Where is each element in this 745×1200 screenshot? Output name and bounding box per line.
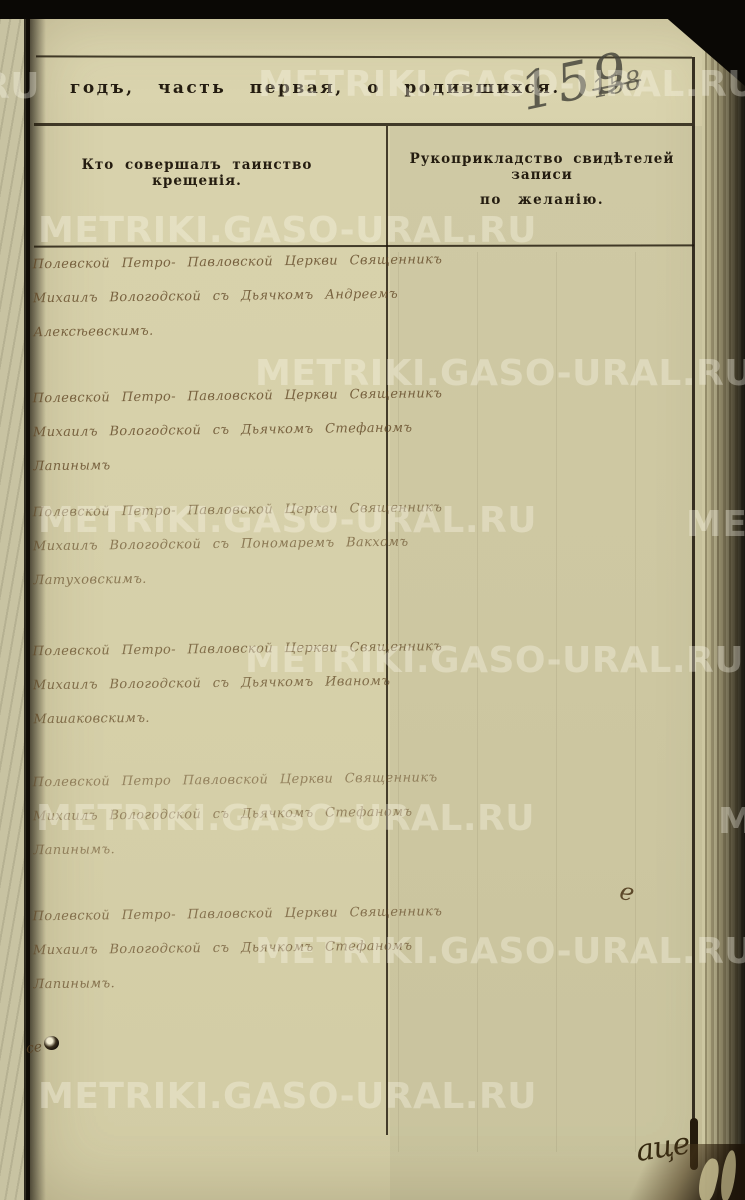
column-header-right-line2: по желанію. xyxy=(396,192,688,208)
previous-page-edge xyxy=(0,14,26,1200)
watermark-text: METRIKI.GASO-URAL.RU xyxy=(255,931,745,972)
handwritten-line: Михаилъ Вологодской съ Дьячкомъ Андреемъ xyxy=(33,278,395,316)
watermark-text: METRIKI.GASO-URAL.RU xyxy=(36,798,535,839)
watermark-text: METRIKI.GASO-URAL.RU xyxy=(38,500,537,541)
watermark-text: METRIKI.GASO-URAL.RU xyxy=(255,353,745,394)
book-edge-top xyxy=(0,0,745,19)
paper-hole xyxy=(44,1036,59,1050)
handwritten-line: Лапинымъ xyxy=(33,446,395,484)
watermark-text: METRIKI.GASO-URAL.RU xyxy=(38,210,537,251)
watermark-text: METRIKI.GASO-URAL.RU xyxy=(258,64,745,105)
register-entry-1: Полевской Петро- Павловской Церкви Свяще… xyxy=(32,244,395,350)
handwritten-line: Алексѣевскимъ. xyxy=(33,312,395,350)
table-header-divider xyxy=(34,123,692,126)
document-scan: годъ, часть первая, о родившихся. Кто со… xyxy=(0,0,745,1200)
column-header-left: Кто совершалъ таинство крещенія. xyxy=(42,157,352,189)
margin-mark: се xyxy=(25,1039,43,1057)
handwritten-line: Михаилъ Вологодской съ Дьячкомъ Стефаном… xyxy=(33,412,395,450)
binding-crease xyxy=(24,14,46,1200)
handwritten-line: Полевской Петро- Павловской Церкви Свяще… xyxy=(32,896,394,934)
watermark-text-partial: RU xyxy=(0,66,40,107)
watermark-text-partial: ME xyxy=(686,504,745,545)
column-header-right-line1: Рукоприкладство свидѣтелей записи xyxy=(396,151,688,183)
page-stack-edge xyxy=(702,16,745,1200)
handwritten-line: Латуховскимъ. xyxy=(33,560,395,598)
watermark-text-partial: ME xyxy=(718,801,745,842)
handwritten-line: Машаковскимъ. xyxy=(33,699,395,737)
watermark-text: METRIKI.GASO-URAL.RU xyxy=(38,1076,537,1117)
handwritten-line: Полевской Петро Павловской Церкви Священ… xyxy=(32,762,394,800)
watermark-text: METRIKI.GASO-URAL.RU xyxy=(245,640,744,681)
